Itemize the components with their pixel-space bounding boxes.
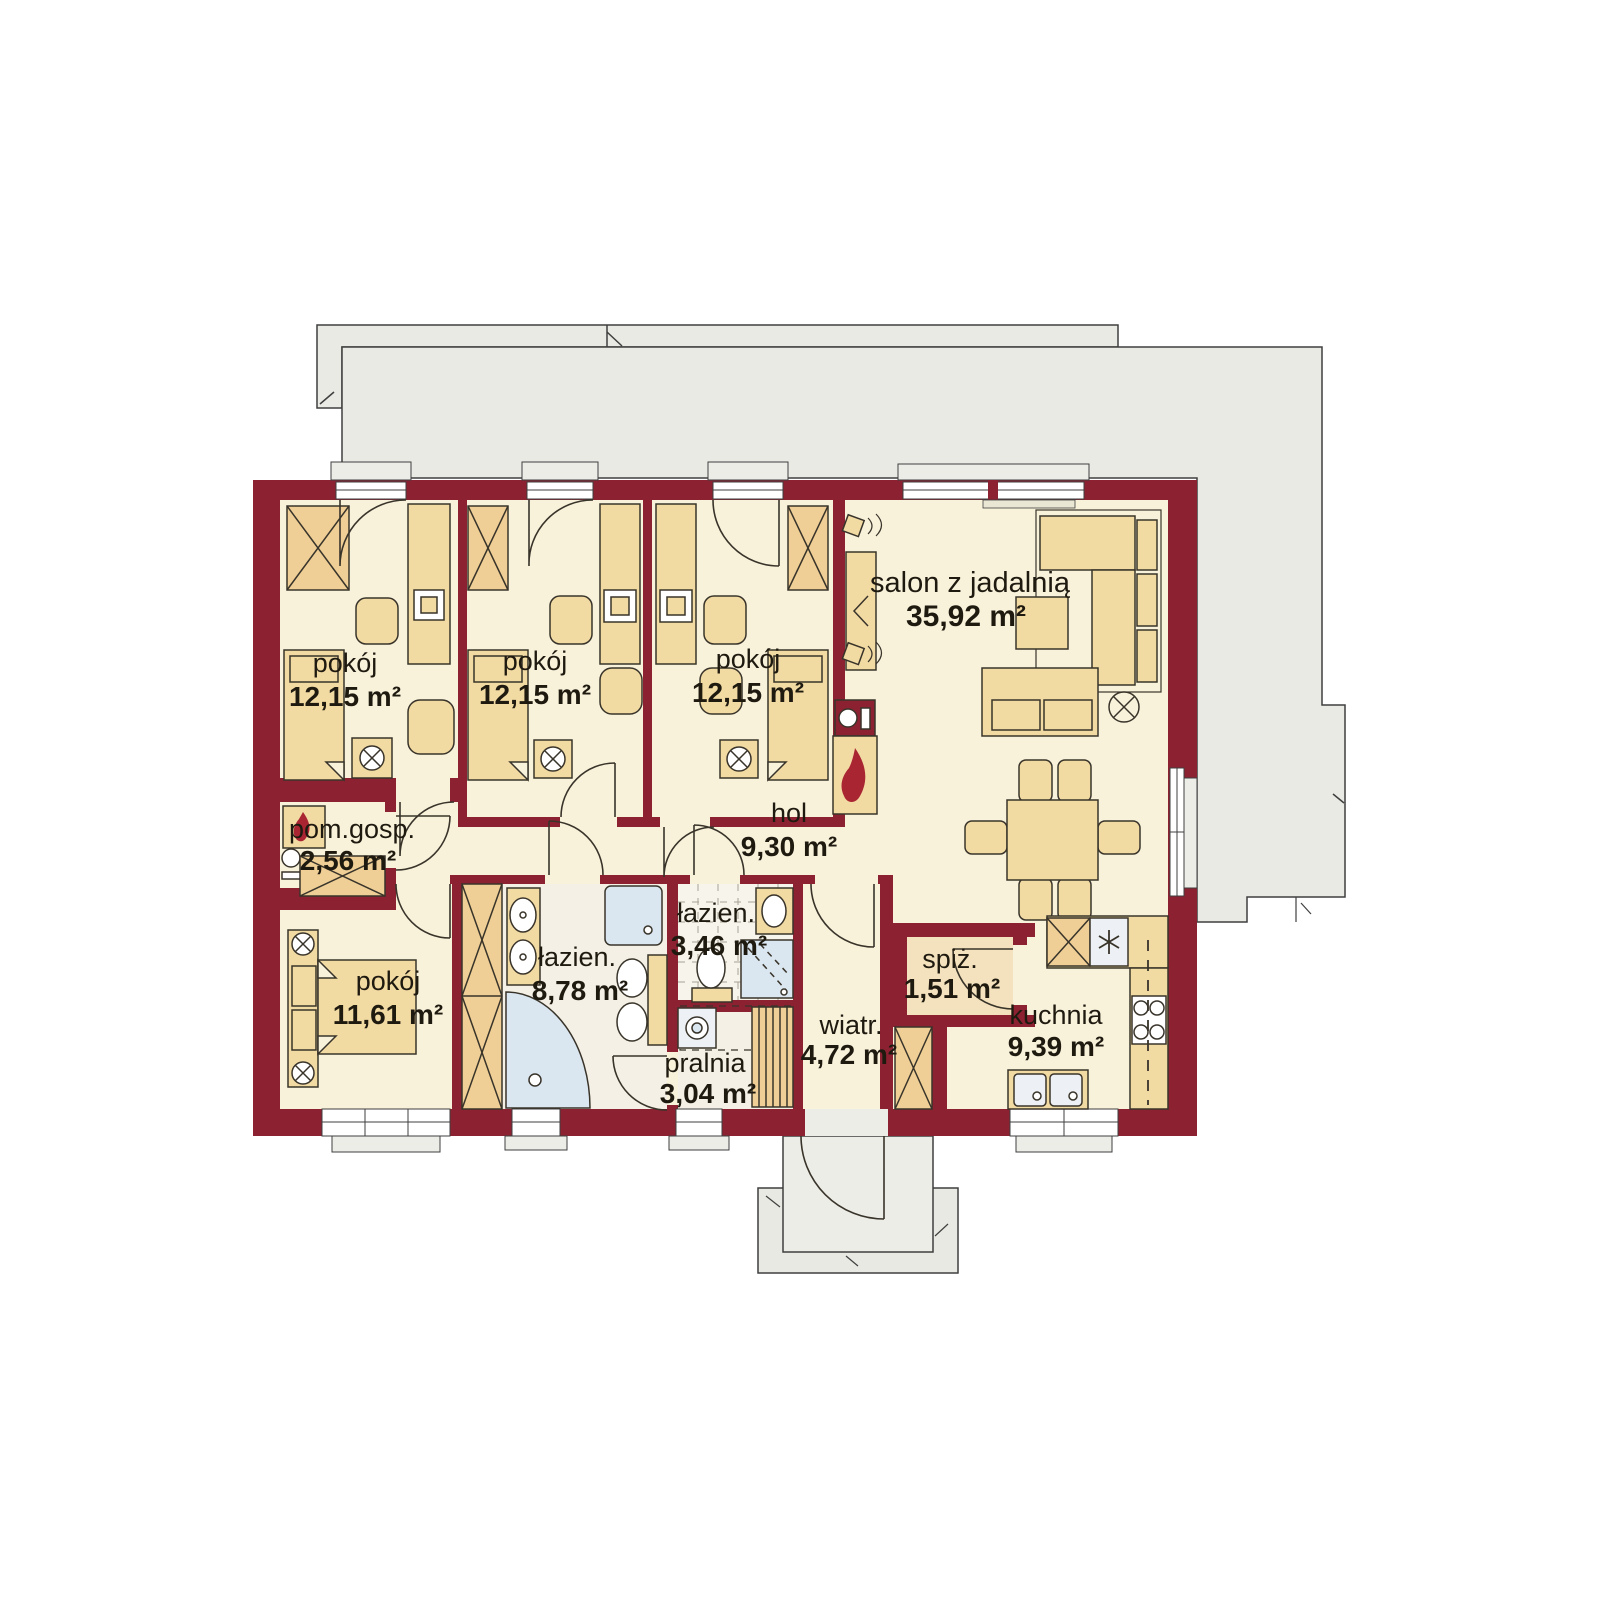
kitchen-window [1010,1109,1118,1152]
room-label-laundry: pralnia [664,1048,746,1078]
bidet [617,1003,647,1041]
terrace-door-window [331,462,411,499]
washbasin [762,895,786,927]
front-door-opening [805,1109,888,1136]
room-area-bedroom-left: 12,15 m² [289,681,401,712]
room-area-hall: 9,30 m² [741,831,838,862]
room-area-utility-room: 2,56 m² [300,845,397,876]
entrance-porch [758,1136,958,1273]
shower-tray [605,886,662,945]
ceiling-lamp-icon [292,1062,314,1084]
room-area-pantry: 1,51 m² [904,973,1001,1004]
bottom-window [669,1109,729,1150]
room-label-kitchen: kuchnia [1009,1000,1103,1030]
room-area-bedroom-right: 12,15 m² [692,677,804,708]
bottom-window [322,1109,450,1152]
room-label-hall: hol [771,798,807,828]
sofa [982,668,1098,736]
room-area-bathroom-small: 3,46 m² [671,930,768,961]
room-area-bedroom-middle: 12,15 m² [479,679,591,710]
hall-wardrobe [462,884,502,1109]
ceiling-lamp-icon [1109,692,1139,722]
room-label-bedroom-master: pokój [356,966,421,996]
room-label-bedroom-left: pokój [313,648,378,678]
room-label-bathroom-small: łazien. [677,898,755,928]
room-area-vestibule: 4,72 m² [801,1039,898,1070]
ceiling-lamp-icon [727,747,751,771]
ceiling-lamp-icon [541,747,565,771]
room-label-pantry: spiż. [922,944,978,974]
terrace-door-window [708,462,788,499]
terrace-sliding-door [1170,768,1197,896]
vestibule-closet [895,1027,932,1109]
terrace-door-window [522,462,598,499]
room-area-bathroom-large: 8,78 m² [532,975,629,1006]
floor-plan-page: pokój 12,15 m² pokój 12,15 m² pokój 12,1… [0,0,1600,1600]
room-label-bedroom-right: pokój [716,644,781,674]
ceiling-lamp-icon [360,746,384,770]
room-label-utility-room: pom.gosp. [289,814,415,844]
room-area-laundry: 3,04 m² [660,1078,757,1109]
fireplace [833,700,877,814]
floor-plan-svg: pokój 12,15 m² pokój 12,15 m² pokój 12,1… [0,0,1600,1600]
room-label-bedroom-middle: pokój [503,646,568,676]
room-label-living-room: salon z jadalnią [870,567,1071,599]
room-area-kitchen: 9,39 m² [1008,1031,1105,1062]
porch-landing [783,1136,933,1252]
room-label-bathroom-large: łazien. [538,942,616,972]
room-area-living-room: 35,92 m² [906,600,1026,633]
room-label-vestibule: wiatr. [818,1010,882,1040]
ceiling-lamp-icon [292,933,314,955]
room-area-bedroom-master: 11,61 m² [333,999,444,1030]
bottom-window [505,1109,567,1150]
